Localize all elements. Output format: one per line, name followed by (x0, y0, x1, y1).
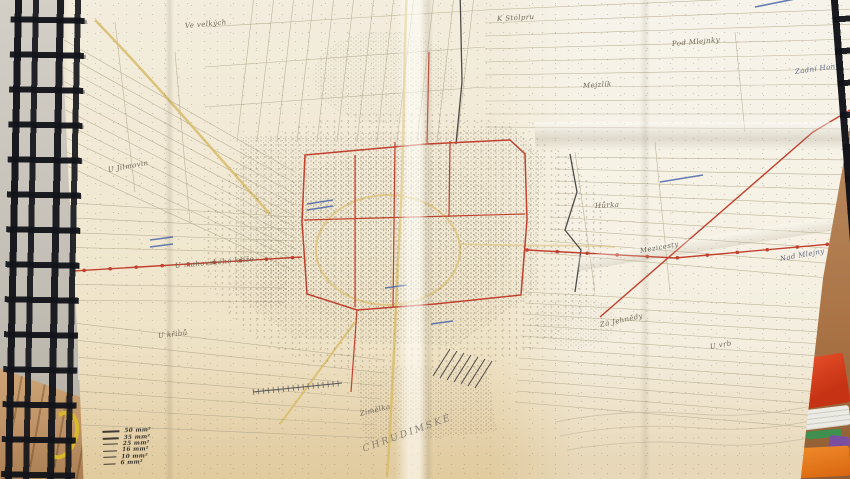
legend-line-sample (104, 463, 116, 464)
legend-line-sample (103, 450, 117, 451)
map-sheet: Ve velkých K Stolpru Pod Mlejnky Zadní H… (55, 0, 850, 479)
map-label-hurka: Hůrka (595, 201, 620, 210)
legend-line-sample (102, 430, 119, 433)
legend-line-sample (103, 444, 118, 446)
map-artwork (55, 0, 850, 479)
town-stipple (233, 31, 617, 444)
legend-line-sample (103, 437, 119, 440)
legend: 50 mm² 35 mm² 25 mm² 16 mm² 10 mm² 6 mm² (102, 427, 152, 467)
legend-item-label: 6 mm² (120, 460, 143, 467)
photo-of-wall-map: Ve velkých K Stolpru Pod Mlejnky Zadní H… (0, 0, 850, 479)
legend-line-sample (103, 457, 116, 458)
